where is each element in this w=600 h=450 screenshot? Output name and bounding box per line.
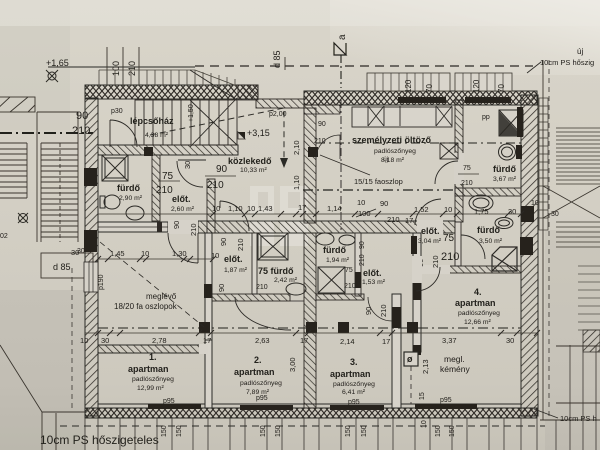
svg-text:30: 30 (71, 248, 79, 257)
svg-text:2,78: 2,78 (152, 336, 167, 345)
svg-text:70: 70 (425, 84, 434, 93)
svg-text:előt.: előt. (363, 268, 382, 278)
svg-text:10: 10 (212, 204, 220, 213)
svg-text:meglévő: meglévő (146, 292, 177, 301)
svg-text:3,67 m²: 3,67 m² (493, 176, 517, 183)
svg-text:210: 210 (379, 304, 388, 317)
svg-text:p30: p30 (111, 108, 123, 115)
svg-text:90: 90 (216, 164, 228, 175)
svg-text:75: 75 (162, 171, 174, 182)
svg-text:10cm PS h: 10cm PS h (560, 414, 597, 423)
svg-text:+3,15: +3,15 (247, 128, 270, 138)
svg-text:10cm PS hőszigeteles: 10cm PS hőszigeteles (40, 433, 159, 447)
svg-text:1,10: 1,10 (228, 204, 243, 213)
svg-text:apartman: apartman (234, 367, 275, 377)
svg-text:1,53 m²: 1,53 m² (362, 279, 386, 286)
svg-text:10: 10 (421, 420, 428, 428)
svg-text:lépcsőház: lépcsőház (130, 116, 174, 126)
svg-text:új: új (383, 156, 389, 163)
svg-text:10: 10 (531, 200, 539, 207)
svg-text:p95: p95 (256, 395, 268, 402)
svg-text:1,52: 1,52 (414, 205, 429, 214)
svg-text:12,66 m²: 12,66 m² (464, 319, 492, 326)
svg-text:15: 15 (419, 392, 426, 400)
svg-text:210: 210 (441, 251, 459, 263)
svg-text:p95: p95 (348, 399, 360, 406)
svg-text:apartman: apartman (128, 364, 169, 374)
svg-text:10cm PS hőszig: 10cm PS hőszig (540, 58, 594, 67)
svg-text:90: 90 (217, 284, 226, 292)
svg-text:90: 90 (380, 199, 388, 208)
svg-text:padlószőnyeg: padlószőnyeg (132, 376, 174, 383)
svg-text:18/20 fa oszlopok: 18/20 fa oszlopok (114, 302, 178, 311)
svg-text:d 85: d 85 (53, 262, 71, 272)
svg-text:120: 120 (472, 79, 481, 93)
svg-text:1,87 m²: 1,87 m² (224, 267, 248, 274)
svg-text:3,00: 3,00 (288, 357, 297, 372)
svg-text:02: 02 (0, 233, 8, 240)
svg-text:30: 30 (183, 161, 192, 169)
svg-text:1,94 m²: 1,94 m² (326, 257, 350, 264)
svg-text:17: 17 (203, 336, 211, 345)
svg-text:100: 100 (111, 61, 121, 76)
svg-text:12,99 m²: 12,99 m² (137, 385, 165, 392)
svg-text:10: 10 (444, 205, 452, 214)
svg-text:előt.: előt. (421, 226, 440, 236)
svg-text:75: 75 (345, 267, 353, 274)
svg-text:10: 10 (80, 336, 88, 345)
svg-text:150: 150 (435, 425, 442, 437)
svg-text:210: 210 (127, 61, 137, 76)
svg-text:+1,65: +1,65 (46, 58, 69, 68)
svg-text:210: 210 (431, 255, 440, 268)
svg-text:150: 150 (275, 425, 282, 437)
svg-text:75 fürdő: 75 fürdő (258, 266, 294, 276)
svg-text:17: 17 (298, 203, 306, 212)
svg-text:1.: 1. (149, 352, 157, 362)
svg-text:4.: 4. (474, 287, 482, 297)
svg-text:közlekedő: közlekedő (228, 156, 272, 166)
svg-text:30: 30 (551, 211, 559, 218)
svg-text:210: 210 (387, 215, 400, 224)
svg-text:6,41 m²: 6,41 m² (342, 389, 366, 396)
svg-text:210: 210 (236, 238, 245, 251)
svg-text:1,43: 1,43 (258, 204, 273, 213)
svg-text:megl.: megl. (444, 354, 465, 364)
svg-text:210: 210 (189, 223, 198, 236)
svg-text:3,50 m²: 3,50 m² (479, 238, 503, 245)
svg-text:17: 17 (300, 336, 308, 345)
svg-text:apartman: apartman (330, 369, 371, 379)
svg-text:2,10: 2,10 (292, 140, 301, 155)
svg-text:fürdő: fürdő (493, 164, 516, 174)
svg-text:30: 30 (506, 336, 514, 345)
svg-text:2,60 m²: 2,60 m² (171, 206, 195, 213)
svg-text:új: új (577, 47, 583, 56)
svg-text:210: 210 (314, 138, 326, 145)
svg-text:p95: p95 (163, 398, 175, 405)
svg-text:előt.: előt. (172, 194, 191, 204)
svg-text:1,10: 1,10 (292, 175, 301, 190)
svg-text:fürdő: fürdő (117, 183, 140, 193)
svg-text:30: 30 (508, 207, 516, 216)
svg-text:1,75: 1,75 (474, 207, 489, 216)
svg-text:padlószőnyeg: padlószőnyeg (333, 381, 375, 388)
svg-text:2,90 m²: 2,90 m² (119, 195, 143, 202)
svg-text:90: 90 (359, 241, 366, 249)
svg-text:150: 150 (260, 425, 267, 437)
svg-text:17: 17 (382, 337, 390, 346)
svg-text:padlószőnyeg: padlószőnyeg (458, 310, 500, 317)
svg-text:2.: 2. (254, 355, 262, 365)
svg-text:2,13: 2,13 (421, 359, 430, 374)
svg-text:75: 75 (463, 165, 471, 172)
svg-text:75: 75 (443, 233, 455, 244)
svg-text:4,38 m²: 4,38 m² (145, 132, 169, 139)
svg-text:210: 210 (359, 254, 366, 266)
svg-text:3,04 m²: 3,04 m² (418, 238, 442, 245)
svg-text:3,37: 3,37 (442, 336, 457, 345)
svg-text:90: 90 (318, 121, 326, 128)
svg-text:pp: pp (482, 114, 490, 121)
svg-text:padlószőnyeg: padlószőnyeg (374, 148, 416, 155)
svg-text:150: 150 (345, 425, 352, 437)
svg-text:210: 210 (344, 283, 356, 290)
svg-text:3.: 3. (350, 357, 358, 367)
svg-text:150: 150 (176, 425, 183, 437)
svg-text:210: 210 (156, 185, 173, 196)
svg-text:210: 210 (207, 180, 224, 191)
svg-text:fürdő: fürdő (323, 245, 346, 255)
svg-text:15/15 faoszlop: 15/15 faoszlop (354, 177, 403, 186)
svg-text:ø: ø (407, 354, 413, 364)
svg-text:2,14: 2,14 (340, 337, 355, 346)
svg-text:d 85: d 85 (272, 50, 282, 68)
svg-text:30: 30 (101, 336, 109, 345)
svg-text:10: 10 (357, 198, 365, 207)
svg-text:17: 17 (405, 216, 413, 225)
svg-text:90: 90 (219, 238, 228, 246)
svg-text:150: 150 (449, 425, 456, 437)
svg-text:padlószőnyeg: padlószőnyeg (240, 380, 282, 387)
svg-text:10,33 m²: 10,33 m² (240, 167, 268, 174)
svg-text:90: 90 (172, 221, 181, 229)
svg-text:+1,50: +1,50 (188, 104, 195, 122)
svg-text:1,14: 1,14 (327, 204, 342, 213)
svg-text:a: a (337, 34, 348, 40)
svg-text:210: 210 (461, 180, 473, 187)
svg-text:2,63: 2,63 (255, 336, 270, 345)
svg-text:150: 150 (361, 425, 368, 437)
svg-text:kémény: kémény (440, 364, 471, 374)
svg-text:p190: p190 (98, 274, 105, 290)
svg-text:előt.: előt. (224, 254, 243, 264)
svg-text:p95: p95 (440, 397, 452, 404)
svg-text:70: 70 (497, 84, 506, 93)
svg-text:10: 10 (247, 204, 255, 213)
svg-text:210: 210 (256, 284, 268, 291)
svg-text:120: 120 (404, 79, 413, 93)
svg-text:apartman: apartman (455, 298, 496, 308)
svg-text:90: 90 (364, 307, 373, 315)
svg-text:150: 150 (161, 425, 168, 437)
